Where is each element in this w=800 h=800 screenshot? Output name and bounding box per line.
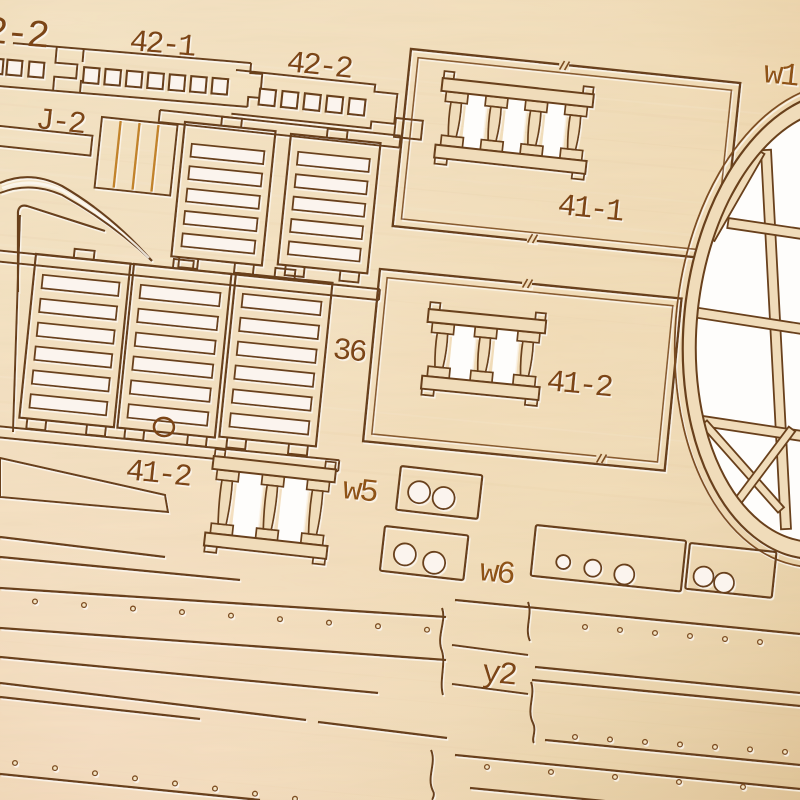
svg-text:2-2: 2-2 <box>0 10 49 59</box>
svg-text:w1: w1 <box>762 55 800 95</box>
svg-text:w5: w5 <box>341 471 379 511</box>
svg-text:y2: y2 <box>480 654 517 694</box>
svg-text:42-2: 42-2 <box>285 46 354 88</box>
svg-text:36: 36 <box>331 333 368 371</box>
svg-text:w6: w6 <box>478 553 516 593</box>
svg-text:42-1: 42-1 <box>128 25 197 66</box>
svg-text:41-1: 41-1 <box>556 189 626 231</box>
svg-text:41-2: 41-2 <box>124 454 193 496</box>
svg-text:41-2: 41-2 <box>545 365 613 406</box>
svg-text:J-2: J-2 <box>34 103 87 143</box>
